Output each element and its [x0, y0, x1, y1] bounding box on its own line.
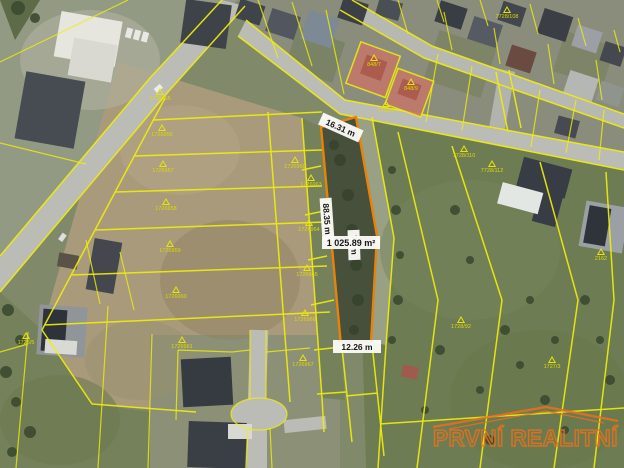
parcel-number: 1726961 [171, 344, 192, 350]
watermark-text: PRVNÍ REALITNÍ [433, 424, 618, 451]
parcel-number: 1726960 [165, 294, 186, 300]
parcel-number: 1726957 [152, 168, 173, 174]
parcel-number: 1726967 [292, 362, 313, 368]
parcel-number: 1726959 [159, 248, 180, 254]
parcel-number: 1727/3 [544, 364, 561, 370]
parcel-number: 1728/92 [451, 324, 471, 330]
parcel-number: 1726955 [149, 96, 170, 102]
parcel-number: 1726956 [151, 132, 172, 138]
parcel-number: 728/99 [378, 108, 395, 114]
parcel-number: 848/9 [404, 86, 418, 92]
measurement-label-area: 1 025.89 m² [322, 236, 380, 249]
parcel-number: 1726958 [155, 206, 176, 212]
aerial-map[interactable]: 1726955172695617269571726958172695917269… [0, 0, 624, 468]
parcel-number: 7728/108 [496, 14, 519, 20]
bottom-frontage-length: 12.26 m [341, 342, 373, 352]
parcel-number: 1726963 [300, 182, 321, 188]
parcel-number: 848/7 [367, 62, 381, 68]
parcel-number: 1726966 [294, 317, 315, 323]
parcel-number: 1726969 [284, 164, 305, 170]
parcel-number: 1726965 [296, 272, 317, 278]
parcel-area: 1 025.89 m² [327, 238, 376, 248]
parcel-number: 1726/5 [18, 340, 35, 346]
parcel-number: 7728/112 [481, 168, 504, 174]
parcel-number: 1726964 [298, 227, 319, 233]
measurement-label-bottom: 12.26 m [333, 340, 381, 353]
parcel-number: 7728/110 [453, 153, 476, 159]
parcel-number: 2162 [595, 256, 607, 262]
